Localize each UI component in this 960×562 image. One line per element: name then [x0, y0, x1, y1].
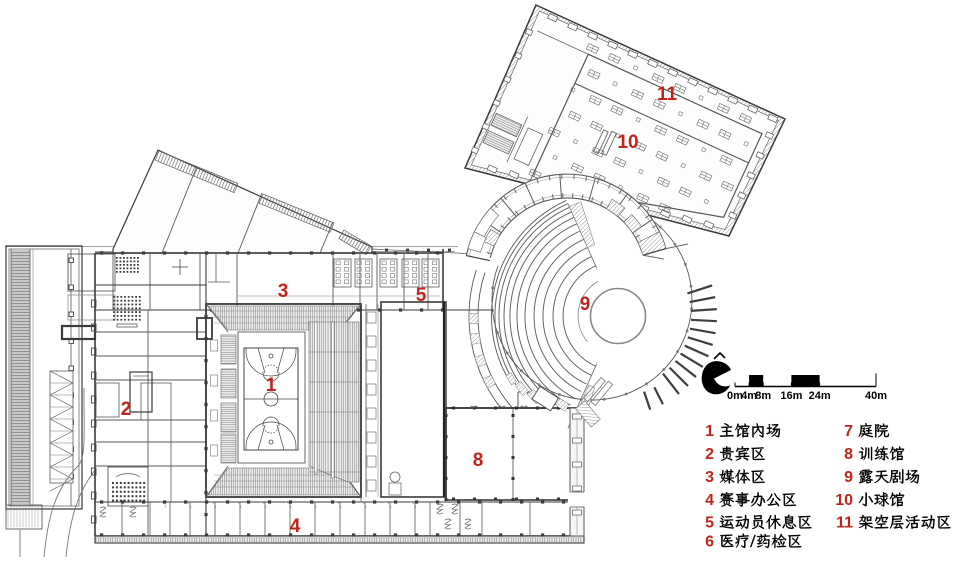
svg-text:1: 1: [266, 375, 277, 396]
svg-text:11: 11: [836, 515, 853, 532]
svg-text:7: 7: [844, 423, 853, 440]
svg-text:8: 8: [473, 450, 484, 471]
svg-text:3: 3: [278, 281, 289, 302]
svg-text:10: 10: [617, 132, 638, 153]
svg-text:2: 2: [121, 399, 132, 420]
svg-text:24m: 24m: [809, 390, 831, 402]
svg-text:4: 4: [290, 516, 301, 537]
svg-text:40m: 40m: [865, 390, 887, 402]
svg-text:10: 10: [835, 492, 853, 509]
svg-text:4: 4: [705, 492, 714, 509]
svg-text:11: 11: [657, 84, 678, 105]
svg-text:9: 9: [844, 469, 853, 486]
svg-text:2: 2: [705, 446, 714, 463]
svg-text:1: 1: [705, 423, 714, 440]
svg-text:16m: 16m: [780, 390, 802, 402]
svg-text:6: 6: [705, 534, 714, 551]
svg-text:5: 5: [416, 285, 427, 306]
svg-text:8: 8: [844, 446, 853, 463]
svg-text:5: 5: [705, 515, 714, 532]
svg-text:3: 3: [705, 469, 714, 486]
svg-text:8m: 8m: [755, 390, 771, 402]
svg-text:9: 9: [580, 294, 591, 315]
